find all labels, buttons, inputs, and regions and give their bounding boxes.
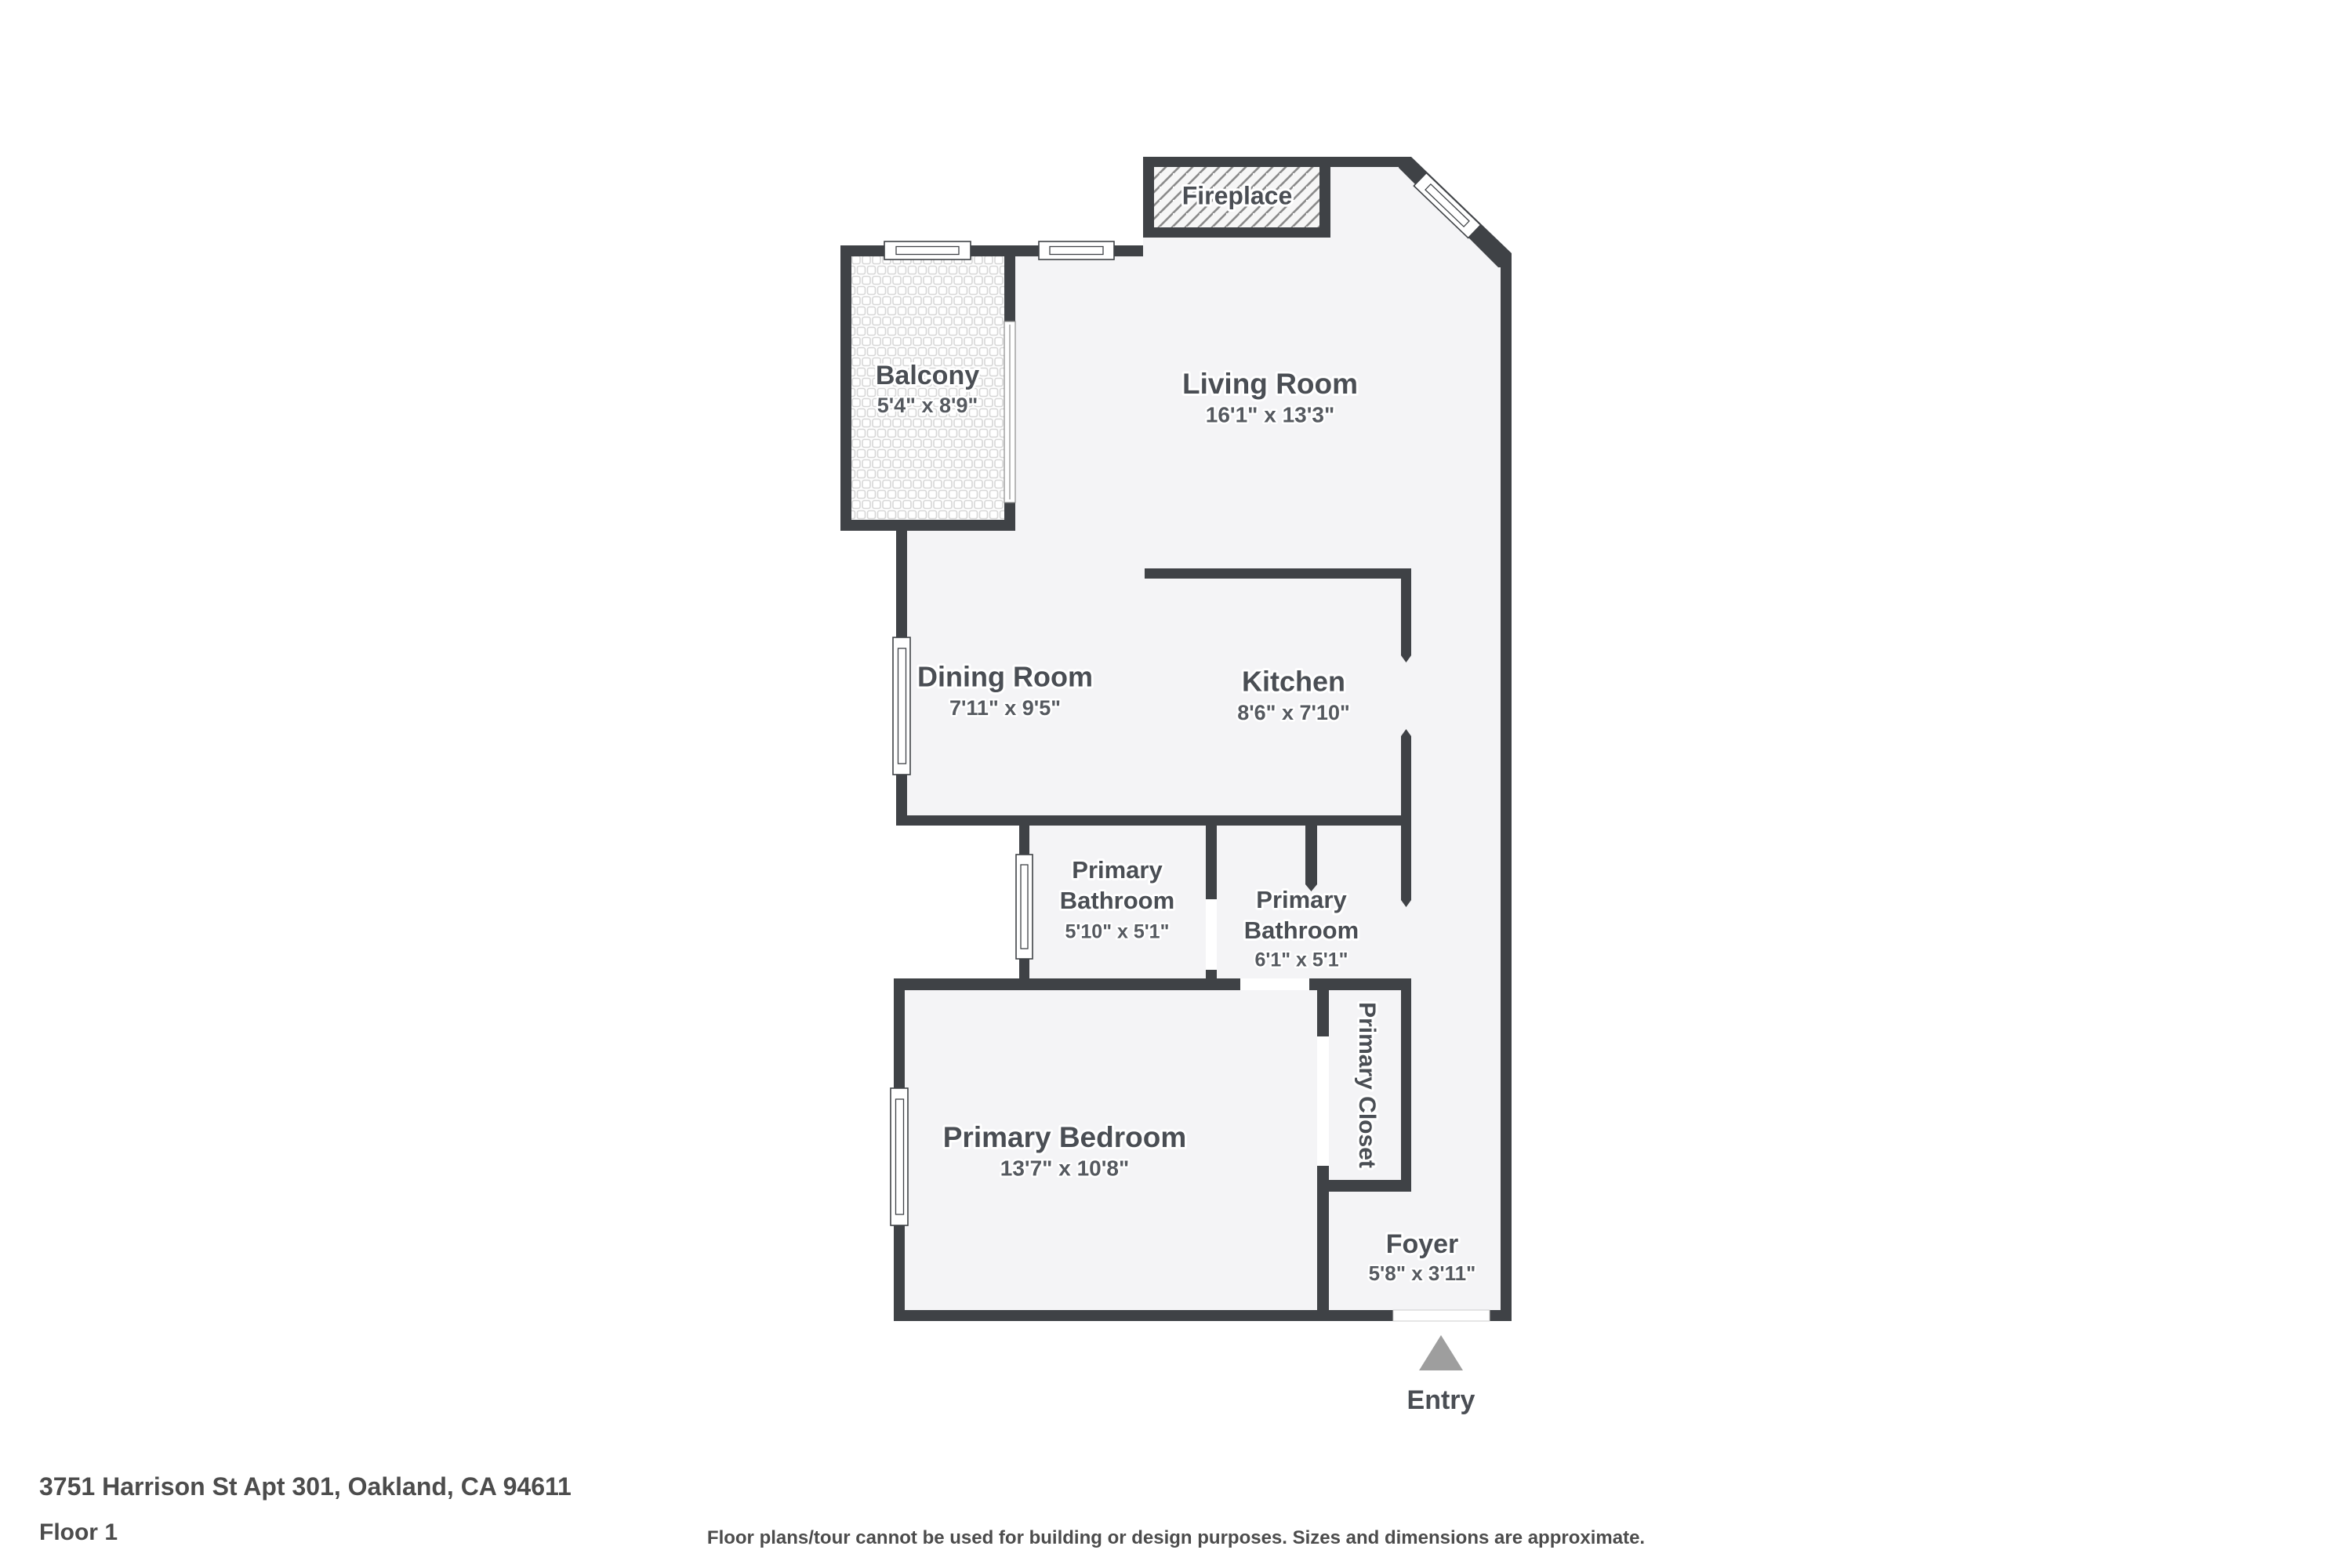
living-room-label: Living Room bbox=[1182, 368, 1358, 400]
bathroom2-label-line2: Bathroom bbox=[1244, 916, 1359, 944]
entry-arrow-icon bbox=[1419, 1335, 1463, 1370]
balcony-label: Balcony bbox=[876, 361, 979, 390]
property-address: 3751 Harrison St Apt 301, Oakland, CA 94… bbox=[39, 1472, 572, 1501]
balcony-dims: 5'4" x 8'9" bbox=[877, 394, 978, 417]
bedroom-dims: 13'7" x 10'8" bbox=[1000, 1156, 1129, 1180]
kitchen-label: Kitchen bbox=[1242, 666, 1345, 698]
closet-door bbox=[1317, 1036, 1329, 1166]
bathroom1-dims: 5'10" x 5'1" bbox=[1065, 921, 1170, 943]
fireplace-label: Fireplace bbox=[1182, 181, 1293, 209]
closet-label: Primary Closet bbox=[1354, 1002, 1380, 1168]
bathroom1-label-line2: Bathroom bbox=[1060, 887, 1174, 914]
bathroom2-dims: 6'1" x 5'1" bbox=[1254, 949, 1348, 971]
entry-marker: Entry bbox=[1407, 1335, 1475, 1415]
living-room-dims: 16'1" x 13'3" bbox=[1206, 402, 1334, 426]
foyer-label: Foyer bbox=[1386, 1229, 1459, 1259]
kitchen-dims: 8'6" x 7'10" bbox=[1237, 701, 1350, 724]
floor-plan-page: Fireplace Balcony 5'4" x 8'9" Living Roo… bbox=[0, 0, 2352, 1568]
bedroom-bathroom-door bbox=[1240, 978, 1309, 990]
entry-label: Entry bbox=[1407, 1385, 1475, 1415]
bathroom-door bbox=[1206, 899, 1217, 970]
floor-plan-canvas: Fireplace Balcony 5'4" x 8'9" Living Roo… bbox=[0, 0, 2352, 1568]
dining-room-label: Dining Room bbox=[917, 661, 1093, 693]
disclaimer-text: Floor plans/tour cannot be used for buil… bbox=[0, 1527, 2352, 1549]
bathroom2-label-line1: Primary bbox=[1256, 886, 1347, 913]
bathroom1-label-line1: Primary bbox=[1072, 856, 1163, 884]
bedroom-label: Primary Bedroom bbox=[943, 1121, 1187, 1153]
foyer-dims: 5'8" x 3'11" bbox=[1369, 1261, 1476, 1285]
dining-room-dims: 7'11" x 9'5" bbox=[949, 696, 1061, 720]
entry-opening bbox=[1393, 1310, 1490, 1321]
